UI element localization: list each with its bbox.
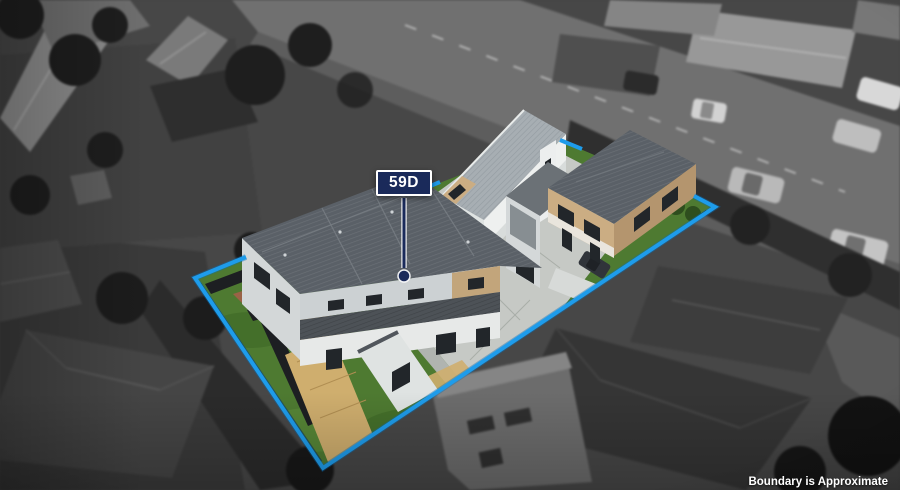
boundary-disclaimer: Boundary is Approximate — [748, 476, 888, 488]
aerial-photo-canvas — [0, 0, 900, 490]
property-label: 59D — [376, 170, 432, 196]
location-dot-icon — [398, 270, 410, 282]
aerial-property-photo: 59D Boundary is Approximate — [0, 0, 900, 490]
